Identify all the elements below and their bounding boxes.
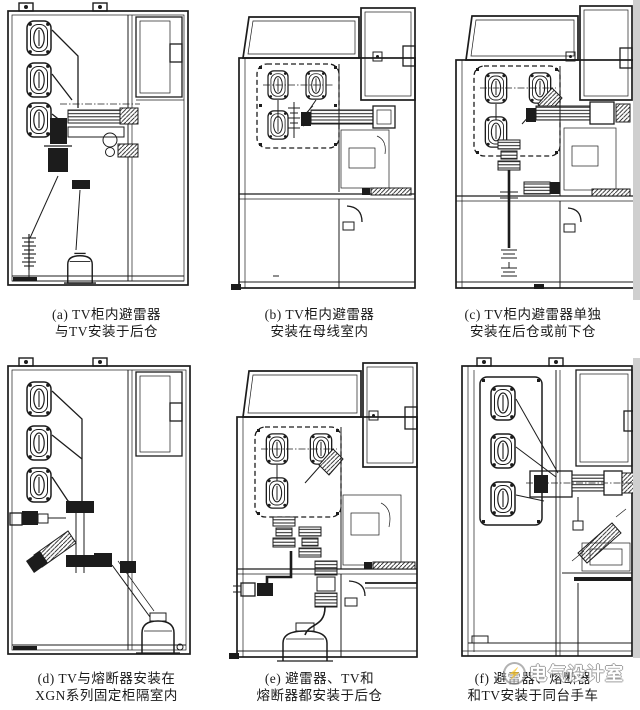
cabinet-diagram-a bbox=[0, 0, 213, 300]
cabinet-diagram-b bbox=[213, 0, 426, 300]
caption-d-line1: (d) TV与熔断器安装在 bbox=[0, 670, 213, 687]
caption-d-line2: XGN系列固定柜隔室内 bbox=[0, 687, 213, 704]
cabinet-diagram-c bbox=[426, 0, 640, 300]
caption-b-line2: 安装在母线室内 bbox=[213, 323, 426, 340]
cabinet-diagram-e bbox=[213, 355, 426, 667]
caption-f-line1: (f) 避雷器、熔断器 bbox=[426, 670, 640, 687]
caption-a: (a) TV柜内避雷器 与TV安装于后仓 bbox=[0, 306, 213, 340]
caption-c: (c) TV柜内避雷器单独 安装在后仓或前下仓 bbox=[426, 306, 640, 340]
caption-a-line2: 与TV安装于后仓 bbox=[0, 323, 213, 340]
caption-f-line2: 和TV安装于同台手车 bbox=[426, 687, 640, 704]
right-edge-strip-bottom bbox=[633, 358, 640, 658]
caption-a-line1: (a) TV柜内避雷器 bbox=[0, 306, 213, 323]
caption-b: (b) TV柜内避雷器 安装在母线室内 bbox=[213, 306, 426, 340]
cabinet-diagram-f bbox=[426, 355, 640, 667]
caption-f: (f) 避雷器、熔断器 和TV安装于同台手车 bbox=[426, 670, 640, 704]
caption-e-line1: (e) 避雷器、TV和 bbox=[213, 670, 426, 687]
caption-e: (e) 避雷器、TV和 熔断器都安装于后仓 bbox=[213, 670, 426, 704]
cabinet-diagram-d bbox=[0, 355, 213, 667]
caption-c-line1: (c) TV柜内避雷器单独 bbox=[426, 306, 640, 323]
figure-page: (a) TV柜内避雷器 与TV安装于后仓 bbox=[0, 0, 640, 710]
caption-c-line2: 安装在后仓或前下仓 bbox=[426, 323, 640, 340]
right-edge-strip-top bbox=[633, 0, 640, 300]
caption-e-line2: 熔断器都安装于后仓 bbox=[213, 687, 426, 704]
caption-b-line1: (b) TV柜内避雷器 bbox=[213, 306, 426, 323]
caption-d: (d) TV与熔断器安装在 XGN系列固定柜隔室内 bbox=[0, 670, 213, 704]
